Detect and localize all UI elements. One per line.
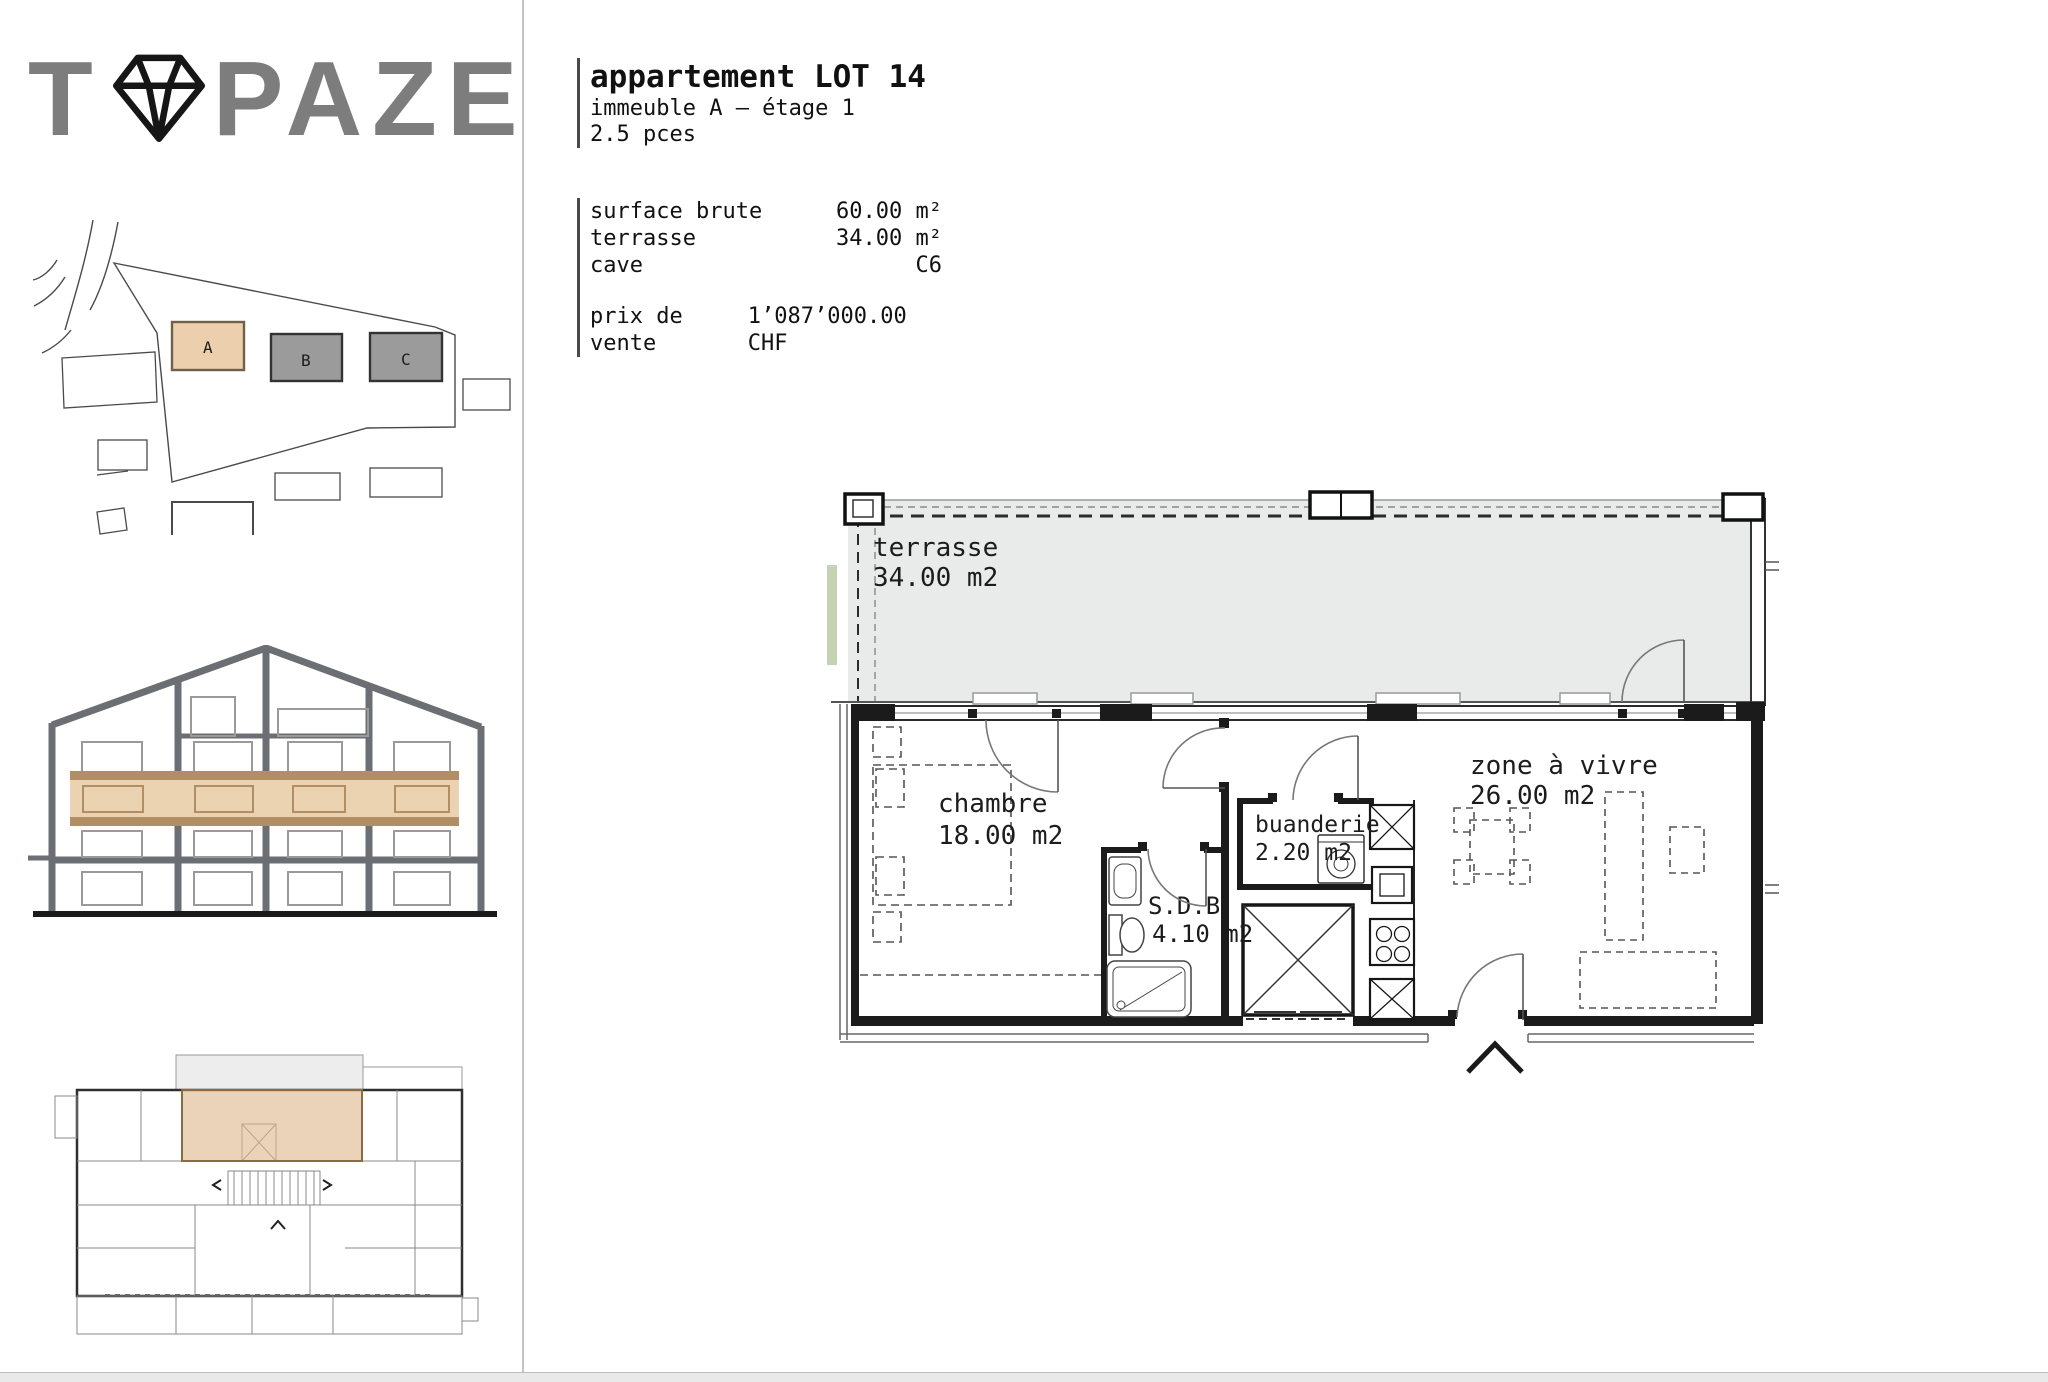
sdb-area-label: 4.10 m2 [1152,920,1253,948]
price-label: prix de vente [590,303,748,357]
site-building-b: B [271,334,342,381]
site-plan-map: A B C [20,210,520,540]
zone-a-vivre-label: zone à vivre [1470,751,1658,781]
building-b-label: B [301,351,311,370]
detail-row: surface brute 60.00 m² [590,198,942,225]
sdb-label: S.D.B [1148,892,1220,920]
garden-strip [827,565,837,665]
building-c-label: C [401,350,411,369]
site-building-a: A [172,322,244,370]
diamond-gem-icon [107,44,211,148]
logo-letter-t: T [28,49,103,149]
detail-row: cave C6 [590,252,942,279]
building-line: immeuble A – étage 1 [590,96,926,122]
floor-key-plan [45,1053,485,1365]
panel-divider [522,0,524,1372]
chambre-label: chambre [938,789,1048,819]
entry-arrow-icon [1468,1044,1522,1072]
living-zone: zone à vivre 26.00 m2 [1454,751,1716,1008]
laundry-room: buanderie 2.20 m2 [1255,812,1380,883]
page-edge-bar [0,1372,2048,1382]
details-block: surface brute 60.00 m² terrasse 34.00 m²… [577,198,942,357]
detail-value: C6 [916,252,943,279]
site-building-c: C [370,333,442,381]
buanderie-label: buanderie [1255,812,1380,838]
brand-logo: T PAZE [28,44,528,154]
price-row: prix de vente 1’087’000.00 CHF [590,303,942,357]
buanderie-area-label: 2.20 m2 [1255,840,1352,866]
building-a-label: A [203,338,213,357]
detail-label: terrasse [590,225,696,252]
site-roads [33,220,118,353]
section-floor1-highlight [70,771,459,826]
detail-label: surface brute [590,198,762,225]
building-section-drawing [25,645,505,950]
zone-a-vivre-area-label: 26.00 m2 [1470,781,1595,811]
keyplan-neighbor-terrace [363,1067,462,1090]
elevator-shaft [1243,905,1353,1019]
bed-furniture [860,727,1101,975]
terrasse-area-label: 34.00 m2 [873,563,998,593]
bedroom: chambre 18.00 m2 [860,727,1101,975]
logo-letters-paze: PAZE [213,49,528,149]
detail-value: 60.00 m² [836,198,942,225]
brochure-page: T PAZE A [0,0,2048,1382]
keyplan-terrace [176,1055,363,1090]
rooms-line: 2.5 pces [590,122,926,148]
detail-row: terrasse 34.00 m² [590,225,942,252]
page-title: appartement LOT 14 [590,58,926,96]
apartment-floor-plan: terrasse 34.00 m2 [818,478,1838,1096]
title-block: appartement LOT 14 immeuble A – étage 1 … [577,58,926,148]
keyplan-unit-highlight [182,1090,362,1161]
chambre-area-label: 18.00 m2 [938,821,1063,851]
detail-value: 34.00 m² [836,225,942,252]
detail-label: cave [590,252,643,279]
living-furniture [1454,792,1716,1008]
price-value: 1’087’000.00 CHF [748,303,942,357]
terrasse-label: terrasse [873,533,998,563]
bathroom: S.D.B 4.10 m2 [1107,857,1253,1017]
